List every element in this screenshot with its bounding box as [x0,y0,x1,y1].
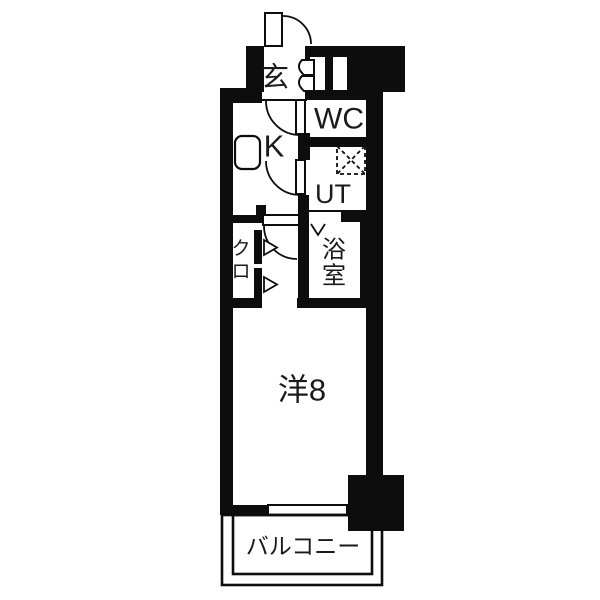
pipe-shaft-niche [333,57,347,90]
entrance-door-leaf-icon [265,13,282,46]
floorplan-drawing: 玄 WC K UT 浴 室 ク ロ 洋8 バルコニー [0,0,600,600]
closet-door-panel-bottom [254,268,262,298]
closet-label: ク [231,238,250,260]
pillar-block [348,475,404,531]
wall-right [366,92,383,475]
wall-room-bottom-left [220,505,268,515]
sliding-window-icon [268,505,347,515]
bathroom-door-opening [309,212,341,222]
closet-door-panel-top [254,230,262,264]
western-room-label: 洋8 [278,373,326,408]
floorplan-canvas: 玄 WC K UT 浴 室 ク ロ 洋8 バルコニー [0,0,600,600]
utility-door-leaf-icon [296,160,305,194]
kitchen-sink-icon [235,136,260,169]
shoe-cabinet-icon [299,60,314,75]
wc-label: WC [314,103,364,136]
bathroom-label: 室 [322,263,346,290]
genkan-label: 玄 [261,62,289,93]
room-door-leaf-icon [263,215,299,225]
closet-label: ロ [231,262,250,283]
wc-door-leaf-icon [296,100,305,134]
kitchen-label: K [264,129,285,164]
utility-label: UT [315,179,351,209]
wall-room-top-left [220,298,262,308]
bathroom-label: 浴 [322,237,346,264]
balcony-label: バルコニー [246,533,361,559]
shoe-cabinet-icon [299,76,314,91]
